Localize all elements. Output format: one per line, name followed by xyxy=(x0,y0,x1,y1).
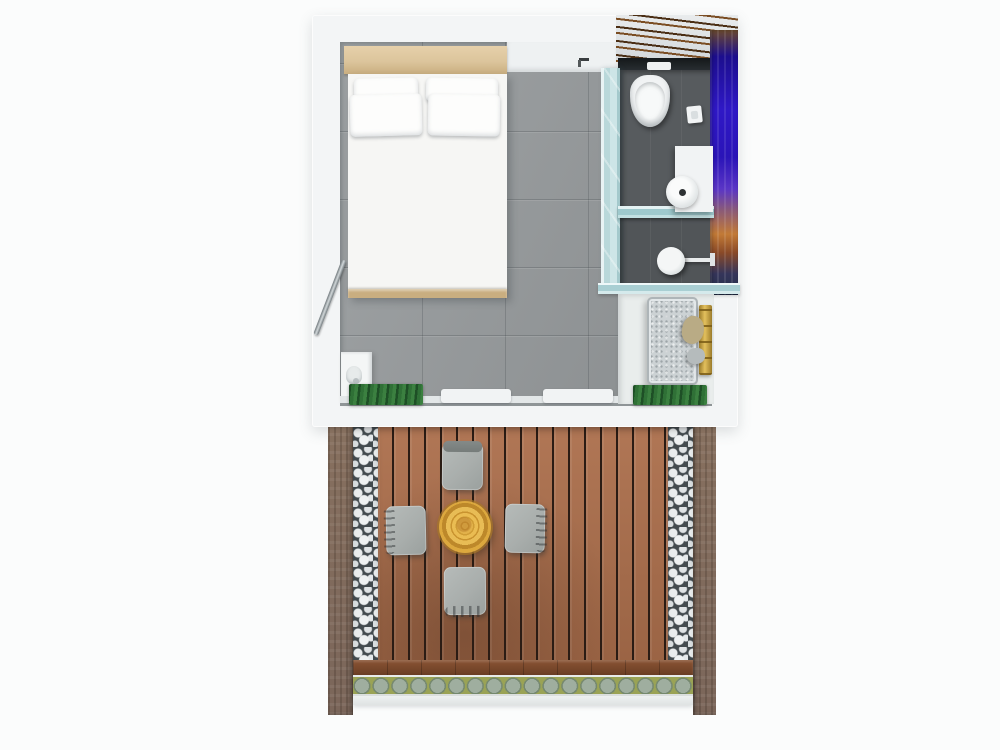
floor-plan-canvas xyxy=(0,0,1000,750)
planter-row xyxy=(353,675,693,696)
wall-hook xyxy=(574,58,589,67)
shower-wall-bracket xyxy=(710,253,715,266)
chair-back xyxy=(443,441,482,452)
chair xyxy=(442,443,483,490)
door-mat xyxy=(349,384,423,405)
sink-basin xyxy=(666,176,698,208)
deck-edge-board xyxy=(353,660,693,675)
bed-footboard xyxy=(348,289,507,298)
bed-headboard xyxy=(344,46,507,74)
double-bed xyxy=(348,74,507,298)
pebble-border-left xyxy=(353,427,378,663)
toilet-seat xyxy=(635,82,665,120)
glass-partition xyxy=(601,68,620,292)
chair xyxy=(386,506,427,556)
stone-wall-left xyxy=(328,427,353,715)
log-table xyxy=(439,501,491,553)
toilet-paper-holder xyxy=(686,105,703,123)
glass-bottom-frame xyxy=(598,283,740,294)
stone-wall-right xyxy=(693,427,716,715)
gold-towel-rail xyxy=(699,305,712,375)
flush-plate xyxy=(647,62,671,70)
chair xyxy=(444,567,486,615)
door-mat xyxy=(633,385,707,405)
rain-shower-head xyxy=(657,247,685,275)
pillow xyxy=(428,93,501,136)
chair-back xyxy=(445,606,485,617)
deck-bottom-lip xyxy=(353,696,693,705)
door-threshold xyxy=(441,389,511,403)
pillow xyxy=(349,93,422,137)
door-threshold xyxy=(543,389,613,403)
chair xyxy=(505,504,546,554)
chair-back xyxy=(536,505,548,552)
chair-back xyxy=(384,507,396,554)
pebble-border-right xyxy=(668,427,693,663)
